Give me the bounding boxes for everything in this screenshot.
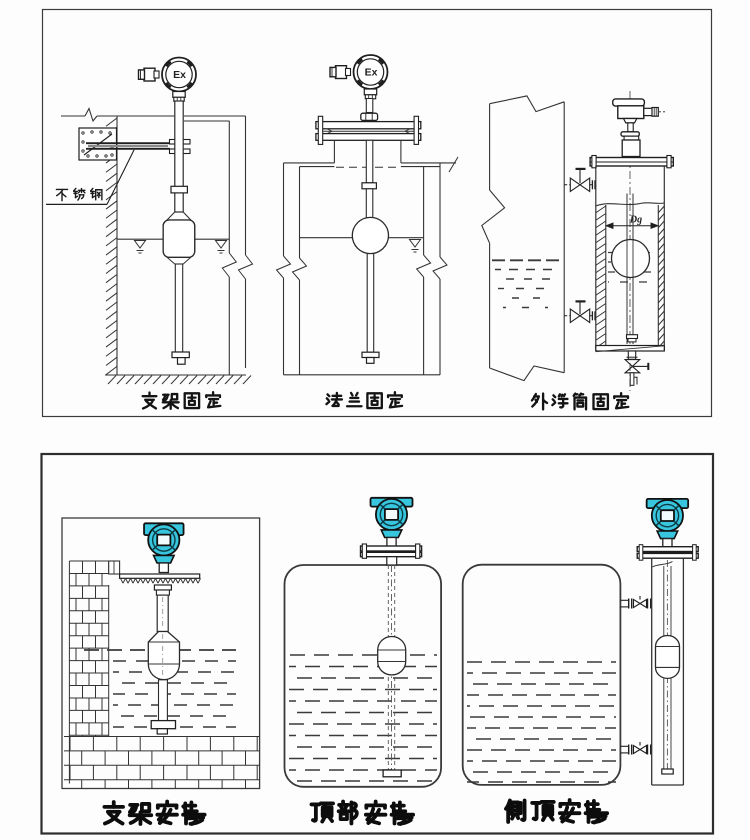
svg-text:Dg: Dg: [629, 215, 642, 226]
svg-text:Ex: Ex: [365, 67, 378, 79]
svg-text:Ex: Ex: [173, 69, 186, 81]
